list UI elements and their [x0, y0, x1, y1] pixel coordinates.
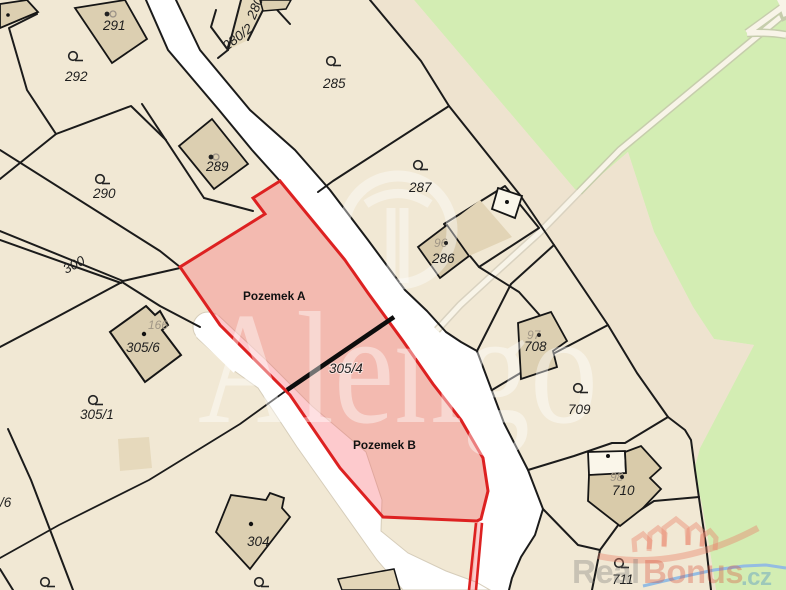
svg-text:166: 166: [148, 318, 168, 332]
svg-text:285: 285: [322, 76, 346, 91]
svg-text:305/1: 305/1: [80, 407, 114, 422]
svg-text:289: 289: [205, 159, 229, 174]
svg-text:304: 304: [247, 534, 270, 549]
svg-text:Pozemek A: Pozemek A: [243, 289, 306, 303]
svg-text:291: 291: [102, 18, 126, 33]
svg-text:Alengo: Alengo: [198, 279, 598, 457]
svg-text:287: 287: [408, 180, 432, 195]
svg-text:286: 286: [431, 251, 455, 266]
svg-text:/6: /6: [0, 495, 12, 510]
svg-text:709: 709: [568, 402, 591, 417]
svg-text:708: 708: [524, 339, 547, 354]
svg-text:Pozemek B: Pozemek B: [353, 438, 416, 452]
svg-text:.cz: .cz: [741, 564, 772, 590]
svg-text:Real: Real: [572, 553, 640, 590]
svg-text:305/4: 305/4: [329, 361, 363, 376]
svg-text:292: 292: [64, 69, 88, 84]
svg-text:305/6: 305/6: [126, 340, 160, 355]
svg-text:710: 710: [612, 483, 635, 498]
svg-text:Bonus: Bonus: [643, 553, 743, 590]
svg-text:290: 290: [92, 186, 116, 201]
